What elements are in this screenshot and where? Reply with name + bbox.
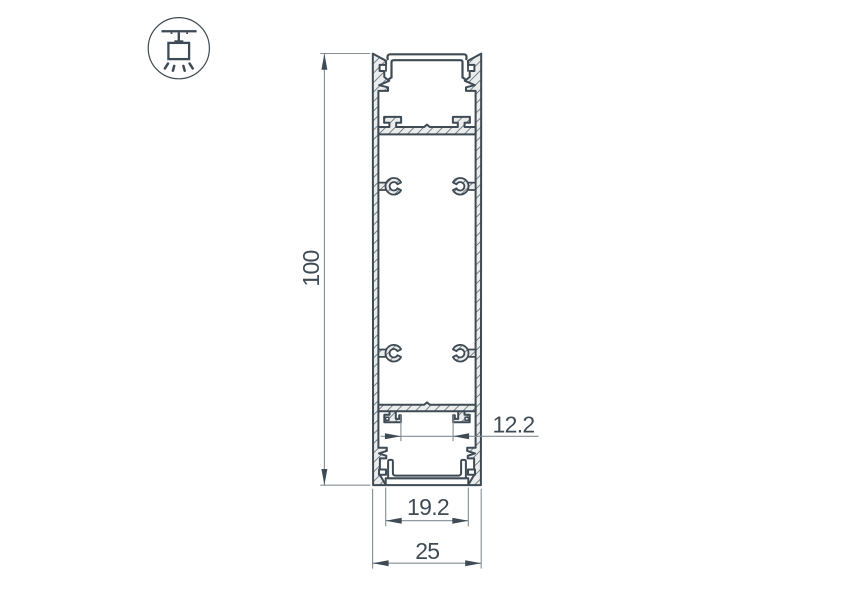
svg-text:19.2: 19.2: [407, 494, 449, 520]
svg-text:12.2: 12.2: [493, 412, 535, 438]
svg-text:100: 100: [298, 250, 324, 286]
svg-text:25: 25: [415, 538, 439, 564]
